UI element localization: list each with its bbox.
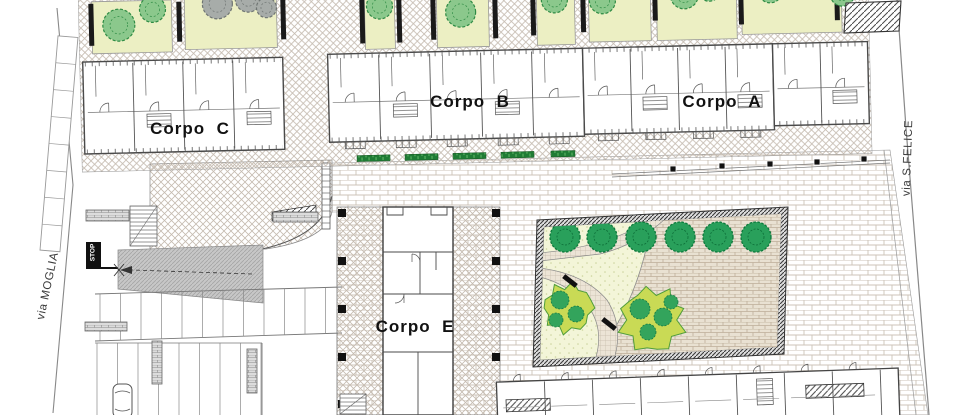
entry-porch (598, 133, 618, 140)
bollard (814, 159, 820, 165)
column-square (338, 305, 346, 313)
east-building (772, 42, 869, 126)
garden-plot (741, 0, 842, 34)
hatched-wall (85, 322, 127, 331)
car (113, 384, 132, 415)
existing-building-hatched (844, 1, 901, 33)
bush-leaf-icon (630, 299, 650, 319)
entry-porch (646, 132, 666, 139)
hatched-wall (86, 210, 129, 221)
sidewalk-strip (40, 36, 78, 252)
hatched-wall (152, 341, 162, 384)
bush-leaf-icon (568, 306, 584, 322)
hedge-bar (176, 2, 182, 42)
hedge-bar (430, 0, 436, 40)
column-square (338, 257, 346, 265)
entry-porch (741, 130, 761, 137)
stair (833, 90, 857, 104)
stair (495, 101, 519, 115)
column-square (492, 257, 500, 265)
gate-element (322, 163, 330, 229)
garden-plot (656, 0, 737, 40)
bush-leaf-icon (549, 313, 563, 327)
tree-icon (587, 222, 617, 252)
column-square (492, 305, 500, 313)
tree-icon (626, 222, 656, 252)
sidewalk-blocks (40, 36, 78, 252)
hedge-bar (738, 0, 744, 25)
entry-porch (396, 140, 416, 147)
stair (738, 94, 762, 108)
hedge-bar (280, 0, 286, 39)
column-square (492, 209, 500, 217)
corpo-c-building (83, 57, 285, 154)
bush-leaf-icon (654, 308, 672, 326)
gate-frame (322, 163, 330, 229)
bush-leaf-icon (664, 295, 678, 309)
column-square (338, 209, 346, 217)
column-square (492, 353, 500, 361)
bollard (719, 163, 725, 169)
car-body (113, 384, 132, 415)
bollard (861, 156, 867, 162)
south-hatched-wall-2 (506, 398, 550, 412)
stair (247, 111, 271, 125)
bollard (670, 166, 676, 172)
site-plan: Corpo C Corpo B Corpo A Corpo E via MOGL… (0, 0, 960, 415)
upper-strip (78, 0, 872, 172)
hedge-strip (551, 150, 575, 157)
hedge-bar (652, 0, 658, 21)
stair (643, 97, 667, 111)
paved-court-west (150, 160, 332, 252)
entry-porch (447, 139, 467, 146)
entry-porch (693, 131, 713, 138)
bush-leaf-icon (640, 324, 656, 340)
south-hatched-wall-1 (806, 383, 864, 398)
site-plan-drawing (0, 0, 960, 415)
hatched-wall (273, 212, 318, 222)
bush-leaf-icon (551, 291, 569, 309)
corpo-b-building (328, 48, 585, 149)
hedge-bar (580, 0, 586, 32)
bollard (767, 161, 773, 167)
hedge-strip (453, 153, 486, 160)
tree-icon (445, 0, 476, 27)
corpo-a-building (583, 44, 775, 141)
south-stair (756, 378, 773, 405)
tree-icon (703, 222, 733, 252)
hatched-wall (247, 349, 257, 393)
tree-icon (550, 222, 580, 252)
hedge-bar (530, 0, 536, 35)
hedge-strip (405, 154, 438, 161)
hedge-bar (88, 4, 94, 46)
hedge-bar (492, 0, 498, 38)
tree-icon (139, 0, 166, 23)
hedge-strip (357, 155, 390, 162)
entry-porch (345, 141, 365, 148)
stair (147, 114, 171, 128)
stop-sign (86, 242, 101, 268)
tree-icon (741, 222, 771, 252)
column-square (338, 353, 346, 361)
entry-porch (498, 138, 518, 145)
entry-porch (549, 137, 569, 144)
stair (393, 104, 417, 118)
hedge-strip (501, 151, 534, 158)
tree-icon (665, 222, 695, 252)
